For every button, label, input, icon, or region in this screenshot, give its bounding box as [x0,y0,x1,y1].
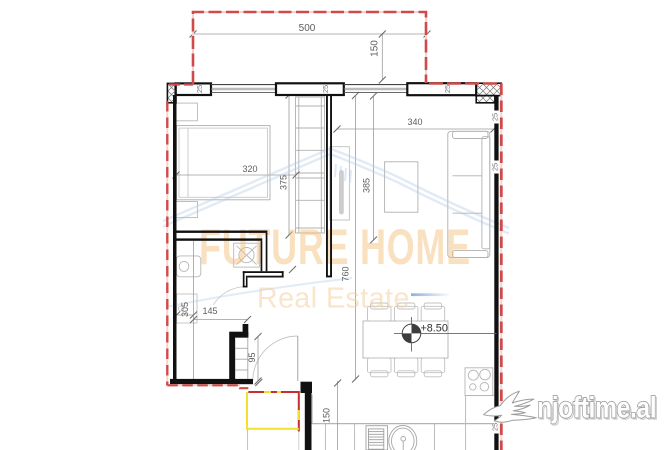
svg-text:145: 145 [202,306,217,316]
svg-text:FUTURE HOME: FUTURE HOME [199,220,471,275]
svg-text:njoftime.al: njoftime.al [537,390,656,424]
svg-text:Real Estate: Real Estate [257,283,410,315]
svg-text:25: 25 [491,113,500,121]
svg-text:+8.50: +8.50 [421,323,448,335]
svg-text:385: 385 [362,178,372,193]
svg-text:760: 760 [341,266,351,281]
svg-text:150: 150 [322,408,332,423]
svg-text:95: 95 [247,352,257,362]
svg-text:25: 25 [491,423,500,431]
svg-text:375: 375 [279,175,289,190]
svg-text:320: 320 [242,164,257,174]
svg-text:500: 500 [299,23,316,34]
svg-text:25: 25 [195,85,204,93]
svg-text:25: 25 [443,85,452,93]
svg-text:25: 25 [491,163,500,171]
svg-text:25: 25 [321,85,330,93]
svg-text:305: 305 [180,302,190,317]
svg-text:150: 150 [370,40,381,57]
svg-text:340: 340 [407,117,422,127]
